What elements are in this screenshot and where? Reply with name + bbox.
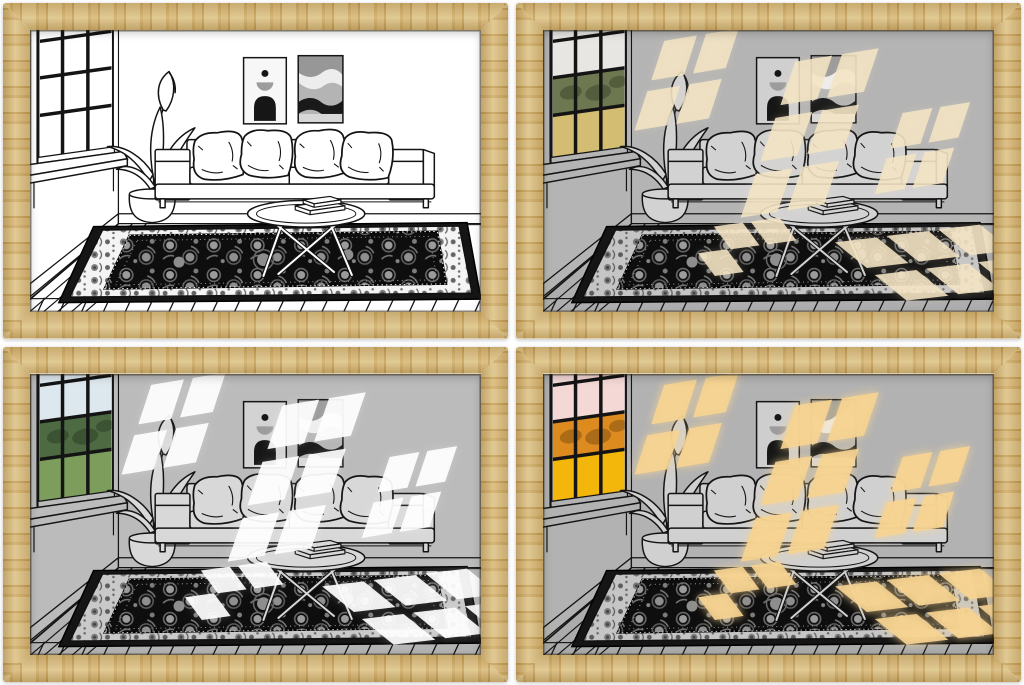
frame-edge-right — [994, 347, 1021, 683]
frame-edge-left — [516, 3, 543, 339]
frame-edge-bottom — [516, 312, 1021, 339]
frame-edge-top — [3, 347, 508, 374]
room-illustration-warm-light — [543, 30, 994, 312]
frame-edge-left — [3, 3, 30, 339]
frame-edge-right — [481, 3, 508, 339]
framed-panel-2 — [516, 3, 1021, 339]
room-illustration-golden-light — [543, 374, 994, 656]
frame-edge-left — [516, 347, 543, 683]
frame-edge-top — [3, 3, 508, 30]
framed-panel-4 — [516, 347, 1021, 683]
frame-edge-right — [994, 3, 1021, 339]
room-illustration-white-light — [30, 374, 481, 656]
frame-edge-right — [481, 347, 508, 683]
frame-edge-bottom — [516, 655, 1021, 682]
framed-panel-3 — [3, 347, 508, 683]
frame-edge-bottom — [3, 655, 508, 682]
framed-panel-1 — [3, 3, 508, 339]
frame-edge-top — [516, 3, 1021, 30]
frame-edge-top — [516, 347, 1021, 374]
frame-edge-left — [3, 347, 30, 683]
product-collage — [0, 0, 1024, 685]
frame-edge-bottom — [3, 312, 508, 339]
room-illustration-light-off — [30, 30, 481, 312]
